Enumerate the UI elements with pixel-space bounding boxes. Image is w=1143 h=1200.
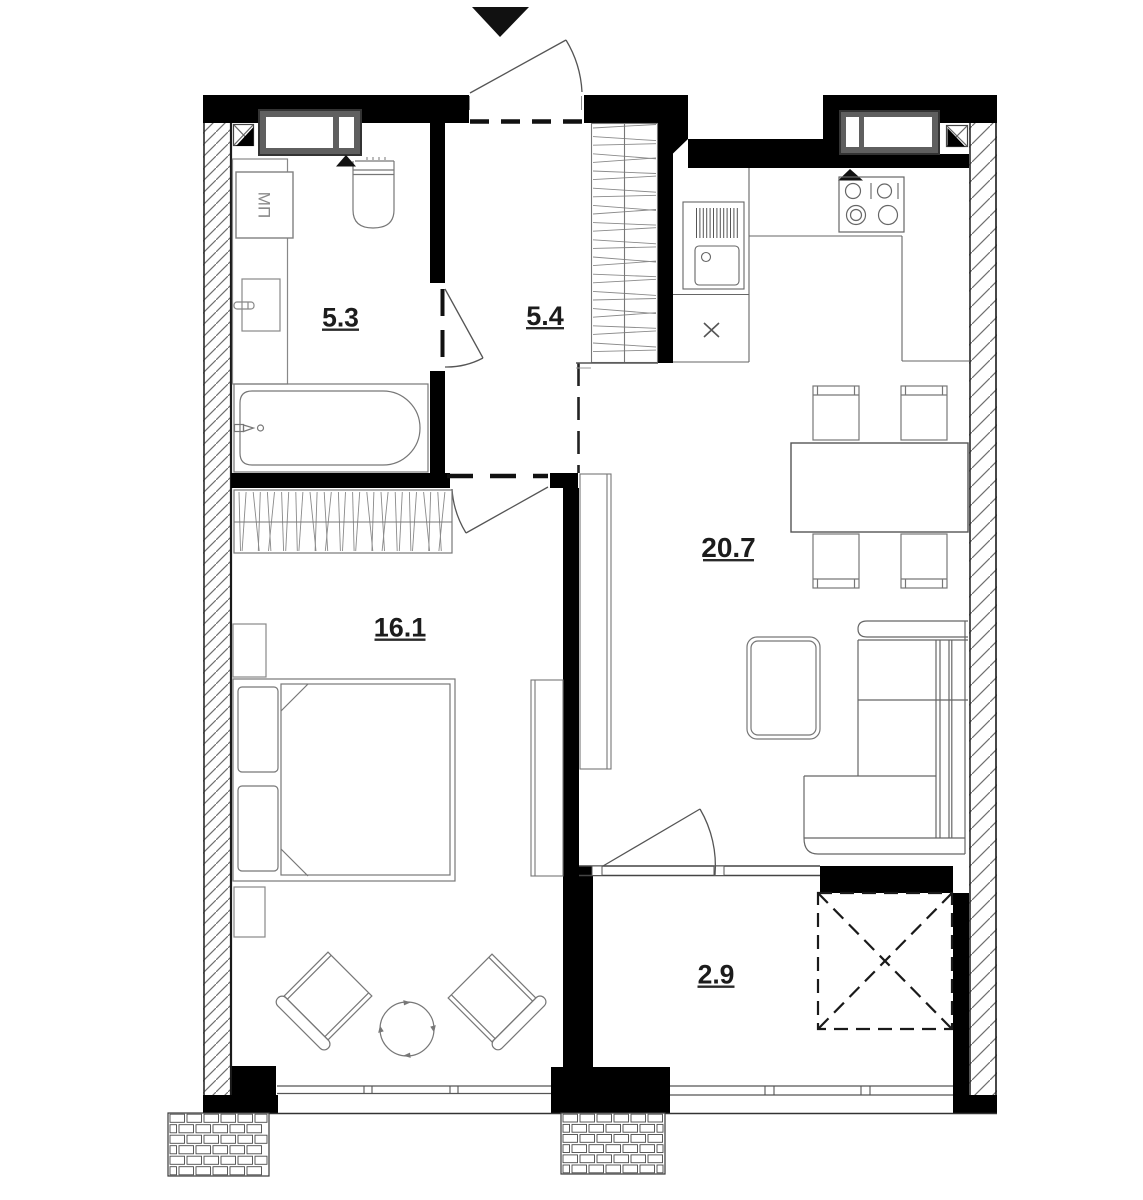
svg-text:5.4: 5.4 — [526, 301, 564, 331]
svg-text:20.7: 20.7 — [701, 532, 756, 563]
svg-text:МП: МП — [255, 192, 274, 218]
svg-text:16.1: 16.1 — [374, 613, 427, 643]
svg-text:2.9: 2.9 — [698, 960, 735, 990]
svg-text:5.3: 5.3 — [322, 303, 359, 333]
